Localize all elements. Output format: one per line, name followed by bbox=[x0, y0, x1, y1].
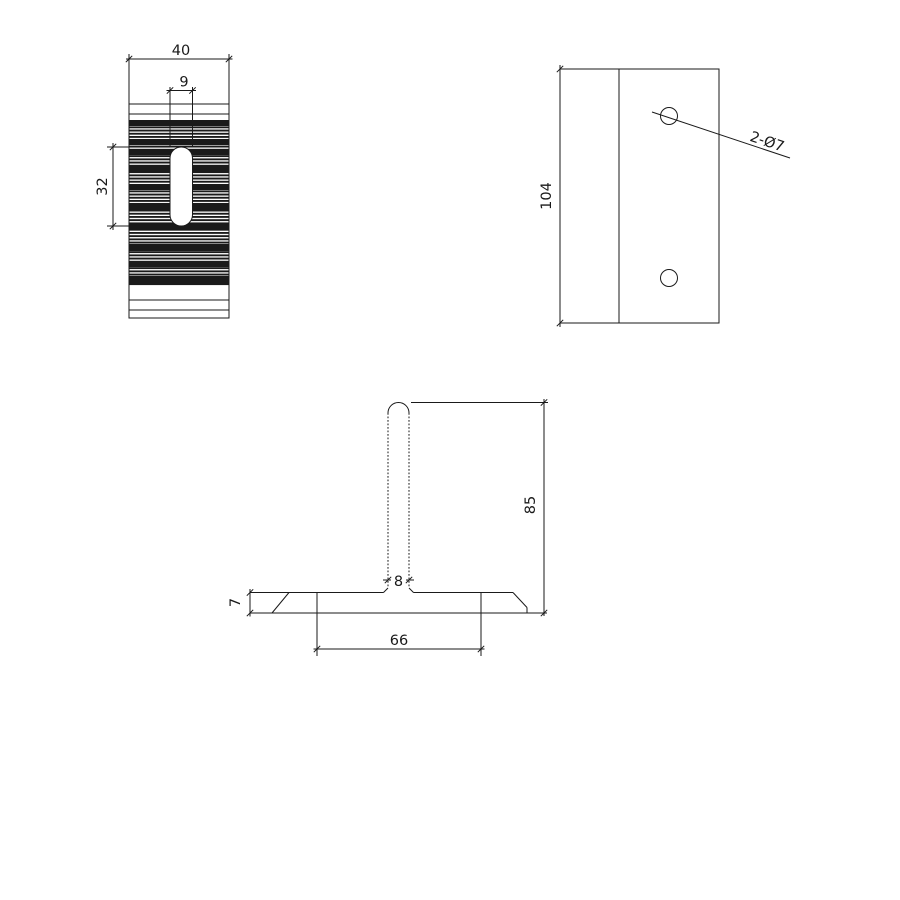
side-view: 104 2-Ø7 bbox=[539, 65, 790, 327]
profile-view: 7 8 85 66 bbox=[228, 399, 548, 656]
dim-slot-length-label: 32 bbox=[95, 177, 111, 195]
dim-stem-height-label: 85 bbox=[523, 496, 539, 514]
dim-85: 85 bbox=[411, 399, 548, 616]
dim-104: 104 bbox=[539, 65, 563, 327]
dim-slot-width-label: 9 bbox=[179, 75, 188, 91]
side-outline bbox=[560, 69, 719, 323]
stem-root-chamfer bbox=[409, 588, 414, 593]
dim-base-span-label: 66 bbox=[390, 633, 408, 649]
stem-cap bbox=[388, 403, 409, 413]
hole-callout-label: 2-Ø7 bbox=[748, 129, 786, 155]
dim-front-width-label: 40 bbox=[172, 43, 190, 59]
hole-callout: 2-Ø7 bbox=[652, 112, 790, 158]
front-slot bbox=[170, 147, 193, 226]
dim-66: 66 bbox=[314, 593, 485, 657]
dim-side-height-label: 104 bbox=[539, 182, 555, 210]
dim-40: 40 bbox=[126, 43, 233, 62]
hole-bottom bbox=[661, 270, 678, 287]
base-end-bevel bbox=[513, 593, 527, 608]
dim-7: 7 bbox=[228, 589, 253, 617]
dim-base-thickness-label: 7 bbox=[228, 598, 244, 607]
front-view: 40 9 32 bbox=[95, 43, 233, 318]
technical-drawing: 40 9 32 bbox=[0, 0, 900, 900]
base-bend-line bbox=[272, 593, 289, 614]
drawing-sheet: 40 9 32 bbox=[0, 0, 900, 900]
dim-stem-width-label: 8 bbox=[394, 574, 403, 590]
stem-root-chamfer bbox=[384, 588, 389, 593]
